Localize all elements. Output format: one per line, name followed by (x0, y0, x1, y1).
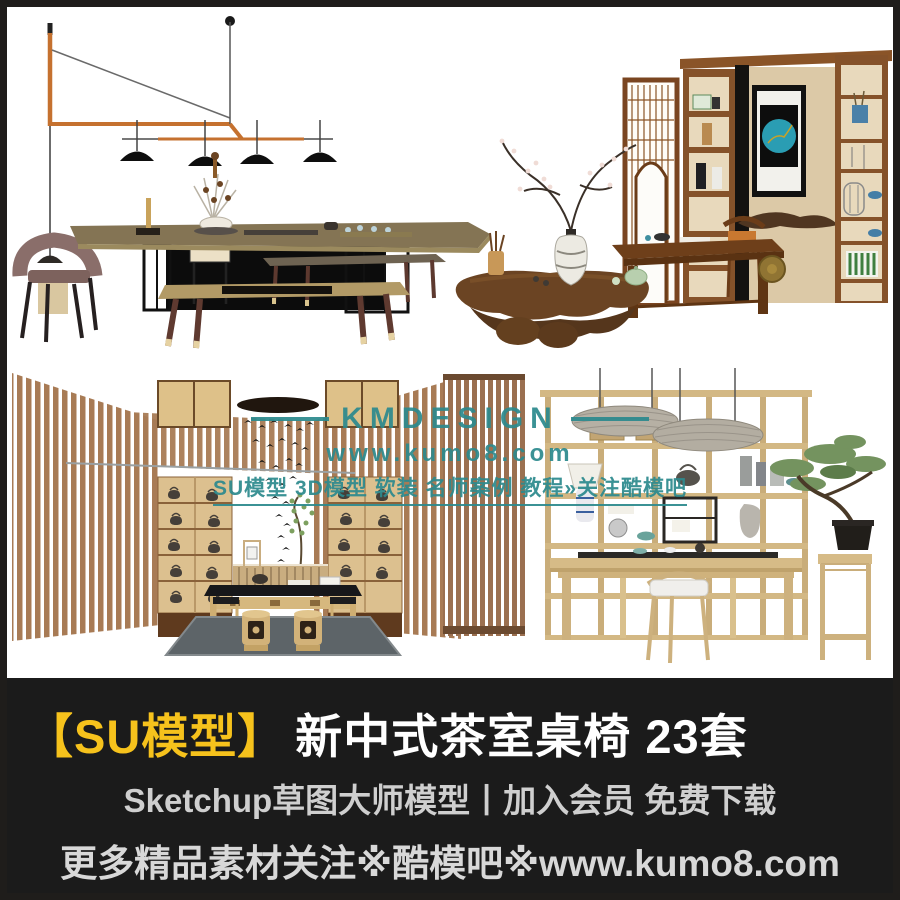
long-tea-table (70, 222, 491, 312)
gray-rug (166, 617, 400, 655)
bamboo-plant (290, 493, 315, 572)
banner-title: 新中式茶室桌椅 23套 (295, 710, 747, 763)
shelving-wall (680, 50, 892, 303)
teapot-shelf-left (158, 477, 232, 637)
teapot-shelf-right (328, 477, 402, 637)
upholstered-chair (20, 240, 96, 342)
scene-tea-table-set (8, 8, 500, 350)
ceiling-disc-lamp (237, 397, 319, 413)
banner-footer: 更多精品素材关注※酷模吧※www.kumo8.com (0, 833, 900, 887)
scene-display-shelf-set (440, 368, 898, 668)
bottom-banner: 【SU模型】新中式茶室桌椅 23套 Sketchup草图大师模型丨加入会员 免费… (0, 678, 900, 900)
slat-screen (443, 374, 525, 636)
framed-artwork (752, 85, 806, 197)
scene-shelving-wall (440, 45, 898, 370)
front-bench (158, 282, 410, 348)
banner-title-line: 【SU模型】新中式茶室桌椅 23套 (26, 698, 748, 767)
banner-title-prefix: 【SU模型】 (26, 710, 285, 763)
scene-slat-tea-room (8, 365, 465, 665)
banner-subtitle: Sketchup草图大师模型丨加入会员 免费下载 (0, 774, 900, 822)
root-carved-tea-table (456, 271, 649, 348)
product-poster: KMDESIGN www.kumo8.com SU模型 3D模型 软装 名师案例… (0, 0, 900, 900)
